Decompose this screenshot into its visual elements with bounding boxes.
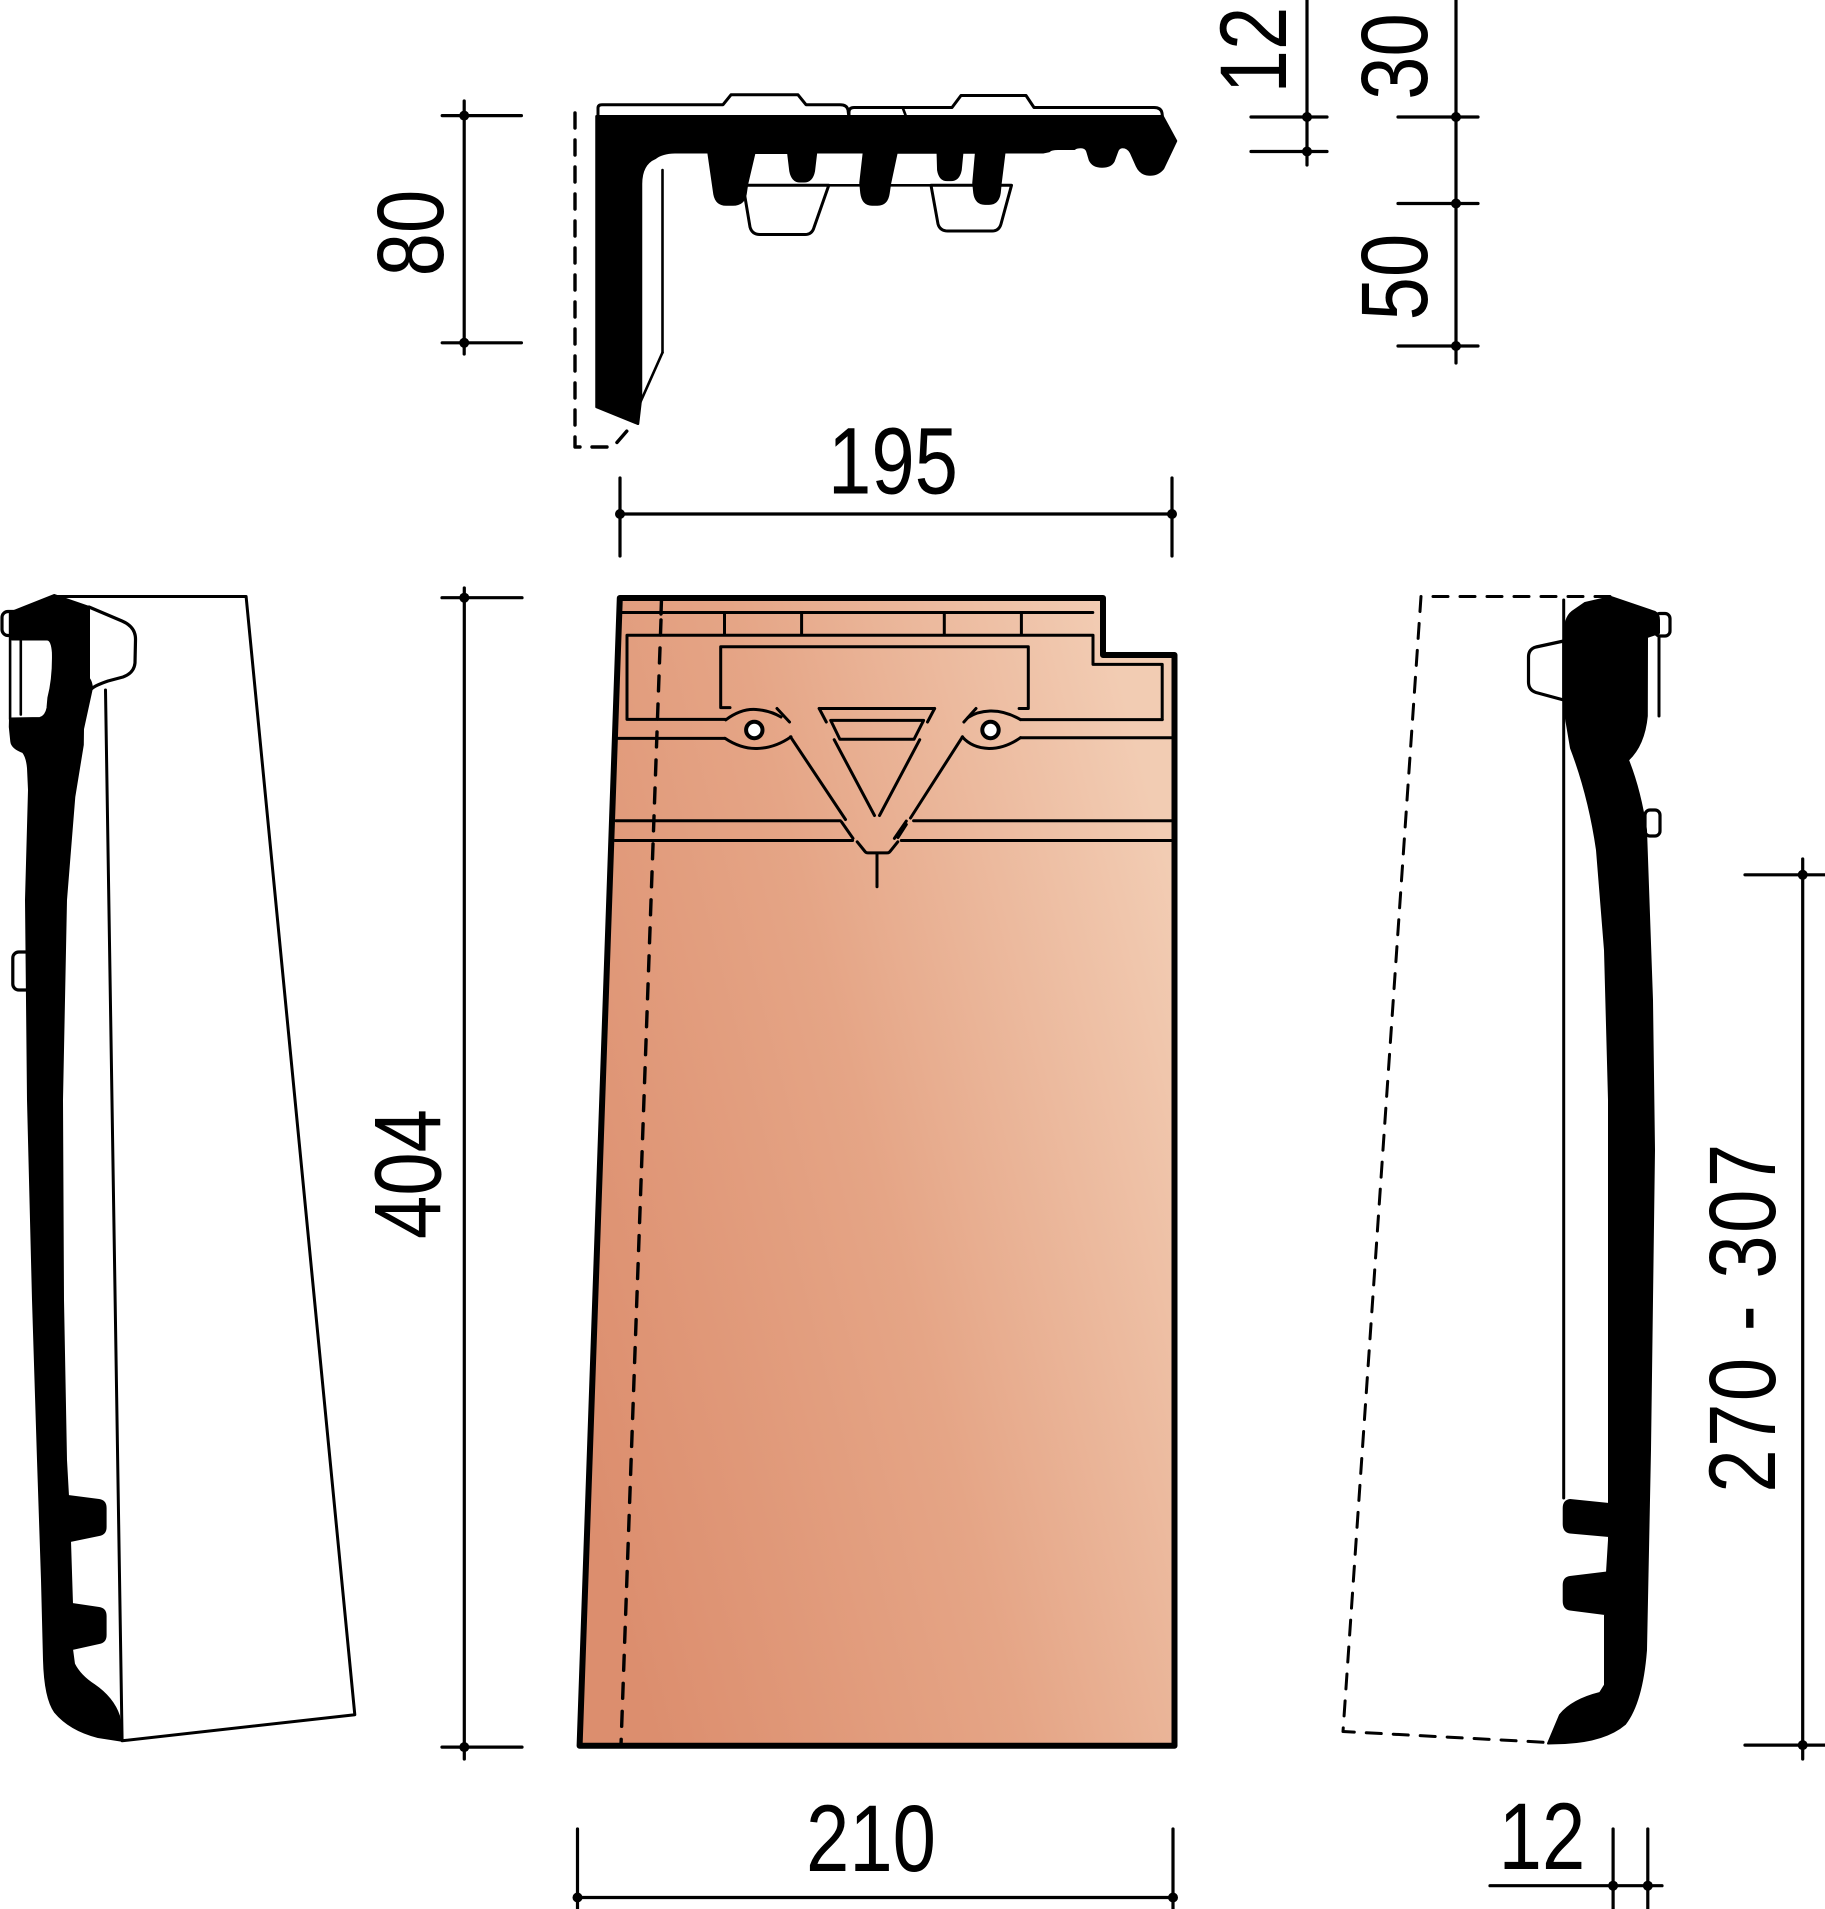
svg-text:404: 404: [355, 1109, 461, 1239]
svg-text:270 - 307: 270 - 307: [1690, 1141, 1796, 1492]
svg-text:80: 80: [358, 190, 464, 277]
svg-text:12: 12: [1499, 1784, 1586, 1890]
svg-text:195: 195: [828, 408, 958, 514]
svg-text:30: 30: [1342, 13, 1448, 100]
svg-text:210: 210: [806, 1786, 936, 1892]
svg-text:12: 12: [1201, 7, 1307, 94]
svg-text:50: 50: [1342, 234, 1448, 321]
